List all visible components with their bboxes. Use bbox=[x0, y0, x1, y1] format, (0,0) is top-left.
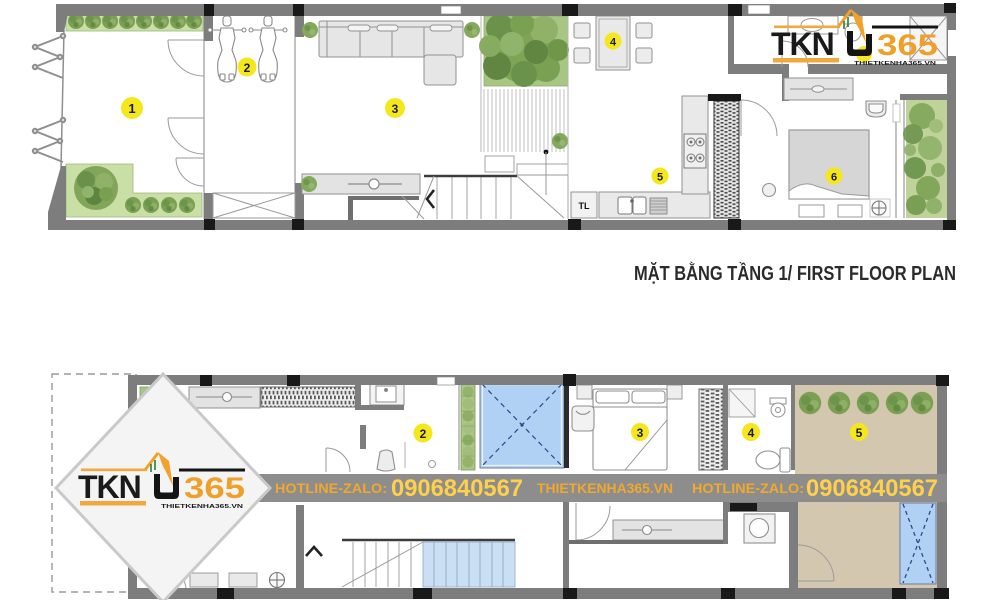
svg-text:0906840567: 0906840567 bbox=[806, 475, 938, 502]
svg-text:THIETKENHA365.VN: THIETKENHA365.VN bbox=[854, 61, 936, 67]
svg-text:HOTLINE-ZALO:: HOTLINE-ZALO: bbox=[275, 481, 387, 496]
svg-text:365: 365 bbox=[877, 29, 938, 62]
svg-text:TKN: TKN bbox=[78, 469, 141, 505]
svg-text:5: 5 bbox=[657, 172, 663, 184]
svg-text:1: 1 bbox=[128, 101, 135, 116]
svg-text:MẶT BẰNG TẦNG 1/ FIRST FLOOR P: MẶT BẰNG TẦNG 1/ FIRST FLOOR PLAN bbox=[634, 261, 956, 285]
svg-text:THIETKENHA365.VN: THIETKENHA365.VN bbox=[161, 504, 243, 510]
svg-text:365: 365 bbox=[184, 472, 245, 505]
svg-text:TL: TL bbox=[579, 201, 590, 211]
svg-text:THIETKENHA365.VN: THIETKENHA365.VN bbox=[537, 481, 673, 496]
svg-text:2: 2 bbox=[244, 61, 251, 75]
svg-text:6: 6 bbox=[831, 172, 837, 184]
svg-text:5: 5 bbox=[856, 426, 863, 440]
svg-text:3: 3 bbox=[392, 102, 399, 116]
svg-text:2: 2 bbox=[420, 427, 427, 441]
svg-text:4: 4 bbox=[748, 426, 755, 440]
svg-text:0906840567: 0906840567 bbox=[391, 475, 523, 502]
svg-text:3: 3 bbox=[637, 426, 644, 440]
svg-text:TKN: TKN bbox=[771, 26, 834, 62]
svg-text:HOTLINE-ZALO:: HOTLINE-ZALO: bbox=[692, 481, 804, 496]
svg-text:4: 4 bbox=[610, 37, 617, 49]
